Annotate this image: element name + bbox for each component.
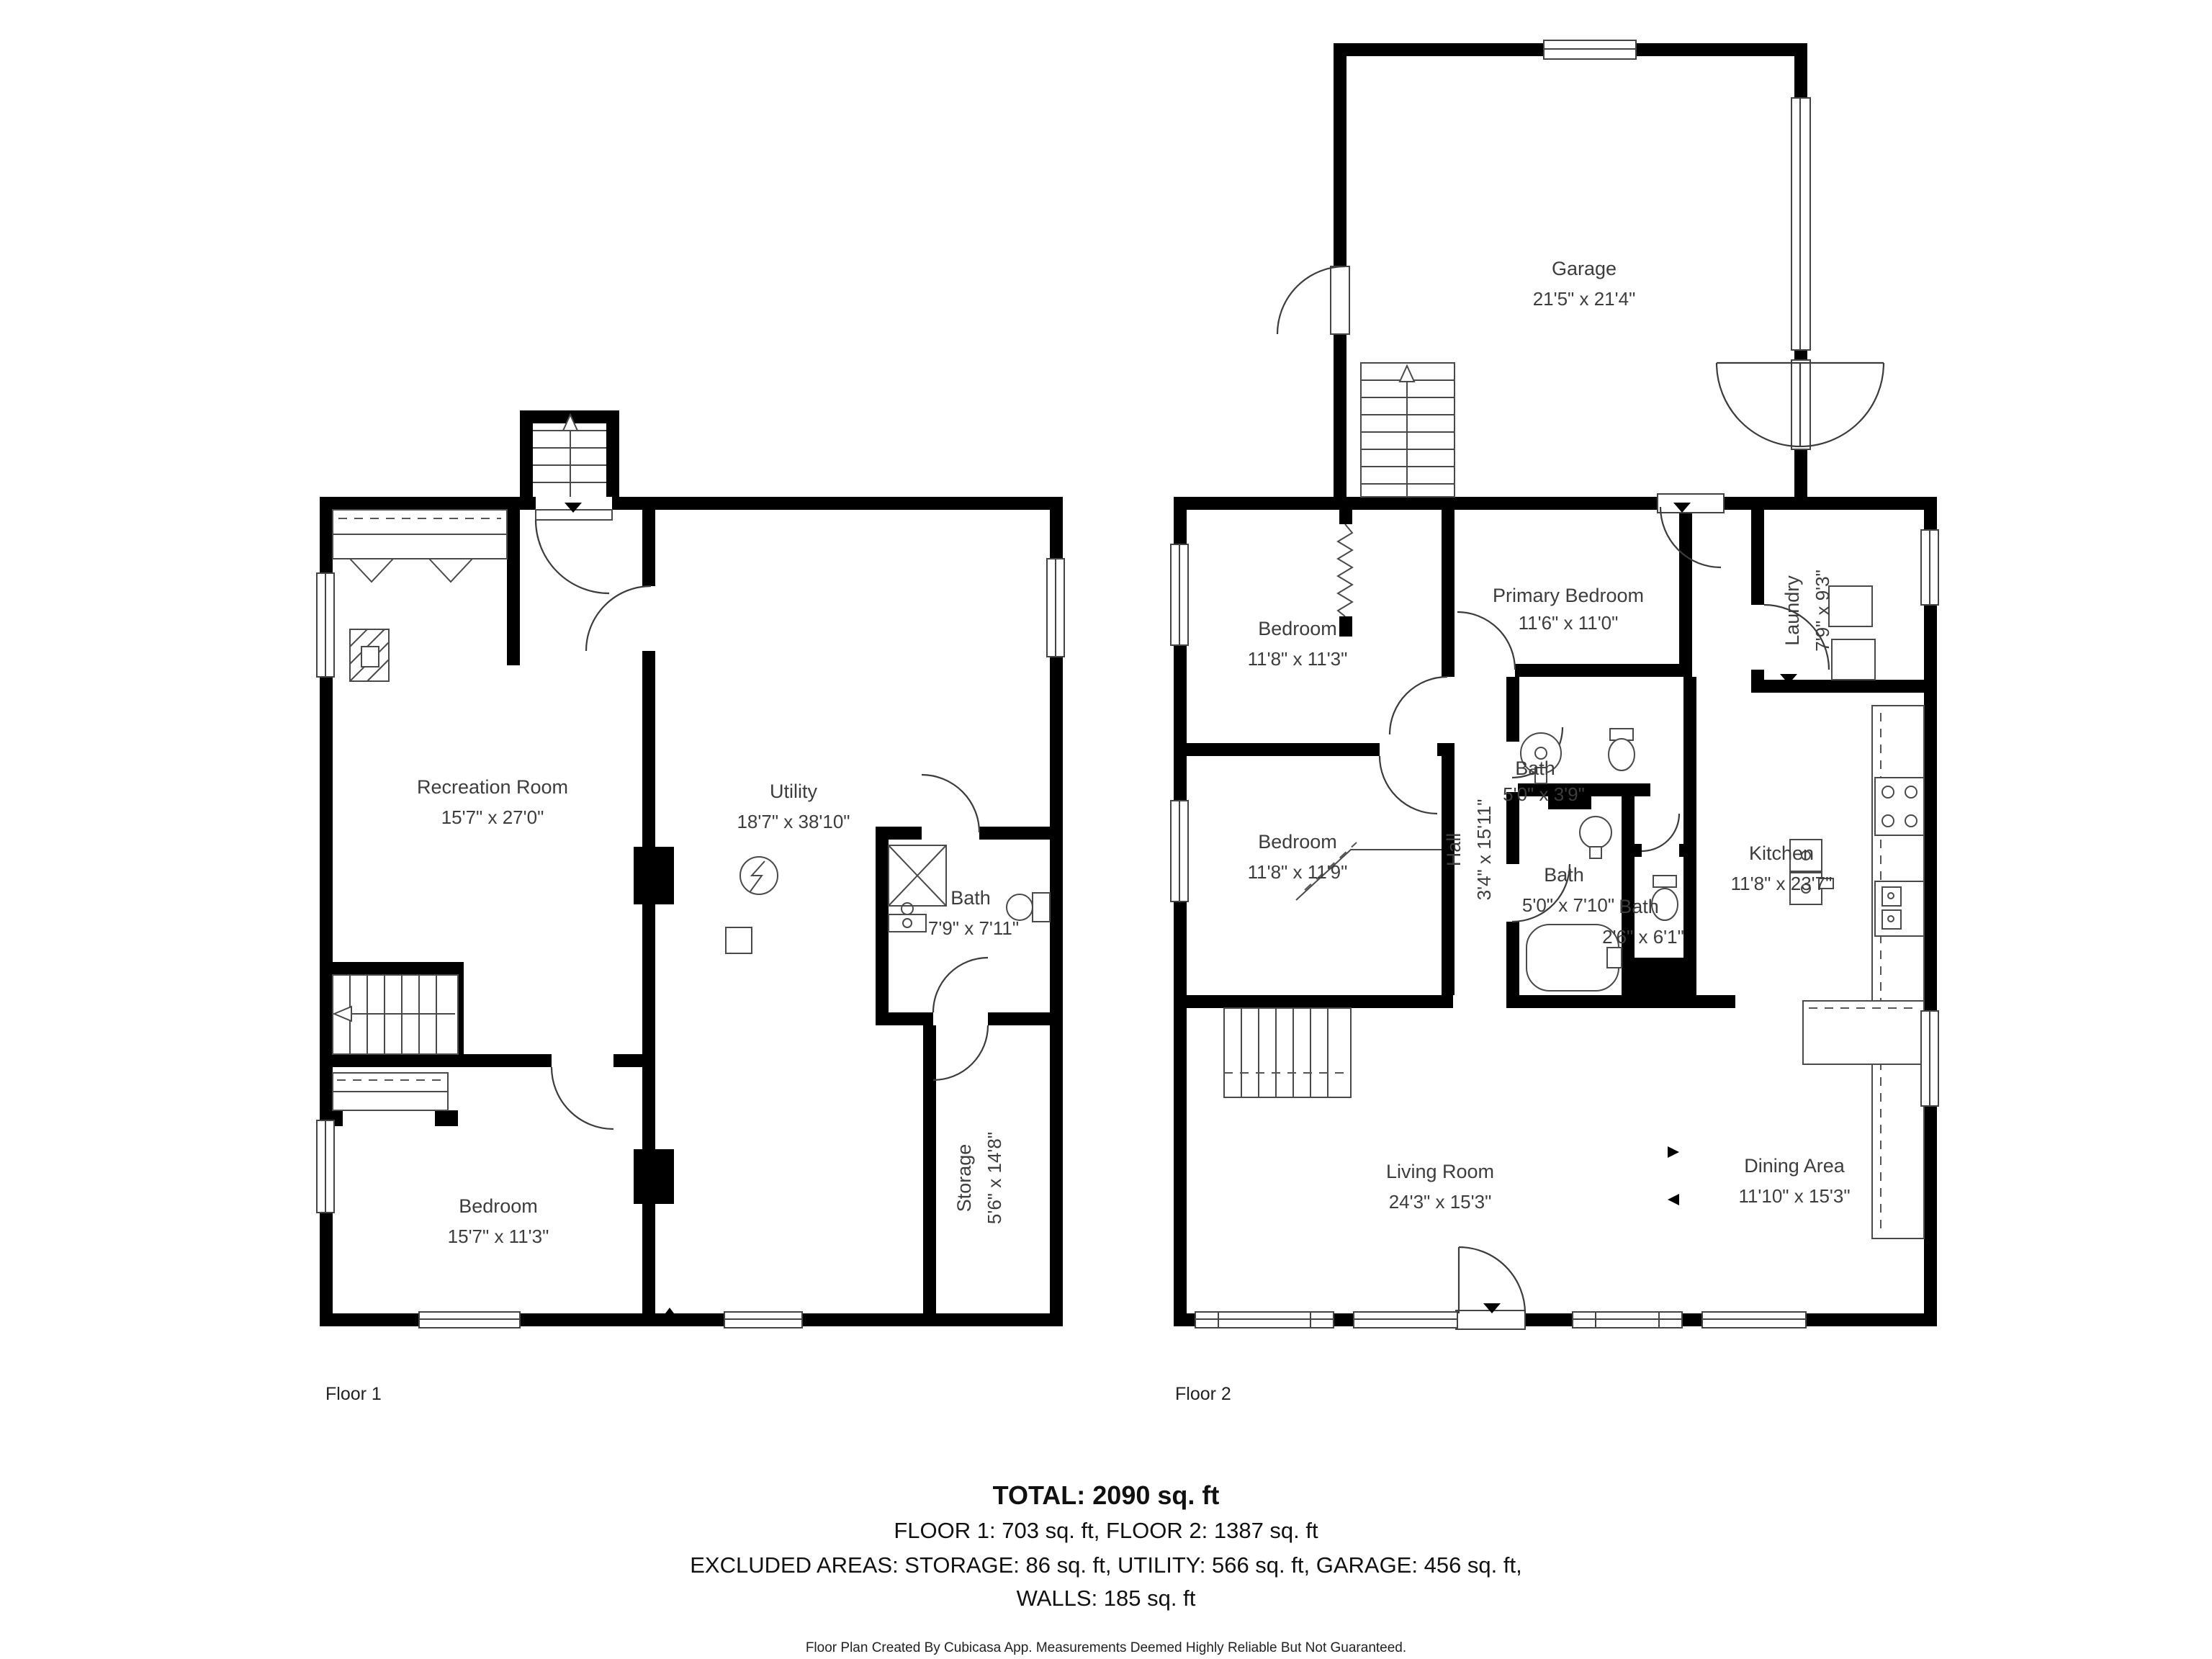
room-label-primary-bedroom: Primary Bedroom <box>1493 585 1644 606</box>
shower-icon <box>889 845 946 906</box>
room-label-bath2: Bath <box>1544 864 1584 886</box>
room-dims-utility: 18'7" x 38'10" <box>737 811 850 832</box>
room-label-laundry: Laundry <box>1781 575 1803 646</box>
summary-walls: WALLS: 185 sq. ft <box>0 1586 2212 1611</box>
fireplace-icon <box>350 629 389 681</box>
floor2-plan: Garage 21'5" x 21'4" Bedroom 11'8" x 11'… <box>1171 40 1938 1404</box>
room-dims-bedroom-b: 11'8" x 11'9" <box>1248 861 1348 883</box>
entry-door-icon <box>536 503 612 593</box>
door-arc-icon <box>586 586 651 651</box>
room-dims-living-room: 24'3" x 15'3" <box>1389 1191 1492 1213</box>
floor2-label: Floor 2 <box>1175 1384 1231 1404</box>
room-dims-laundry: 7'9" x 9'3" <box>1812 570 1833 652</box>
floor1-plan: Recreation Room 15'7" x 27'0" Utility 18… <box>317 410 1064 1404</box>
floorplan-page: Recreation Room 15'7" x 27'0" Utility 18… <box>0 0 2212 1659</box>
electrical-panel-icon <box>726 857 778 953</box>
floorplan-canvas: Recreation Room 15'7" x 27'0" Utility 18… <box>0 0 2212 1659</box>
room-dims-primary-bedroom: 11'6" x 11'0" <box>1519 612 1619 634</box>
room-dims-recreation-room: 15'7" x 27'0" <box>441 806 544 828</box>
floor2-walls <box>1174 43 1937 1326</box>
room-label-bedroom-a: Bedroom <box>1258 618 1337 639</box>
closet-icon <box>333 1073 448 1110</box>
stairs-garage-icon <box>1361 363 1455 497</box>
room-dims-bedroom-f1: 15'7" x 11'3" <box>448 1226 549 1247</box>
room-label-storage: Storage <box>953 1144 975 1213</box>
sink-icon <box>1580 817 1611 858</box>
summary-excluded-areas: EXCLUDED AREAS: STORAGE: 86 sq. ft, UTIL… <box>0 1552 2212 1578</box>
stairs-down-icon <box>333 975 458 1054</box>
room-label-utility: Utility <box>770 781 817 802</box>
room-dims-storage: 5'6" x 14'8" <box>984 1132 1005 1224</box>
door-arc-icon <box>552 1067 613 1129</box>
room-label-recreation-room: Recreation Room <box>417 776 568 798</box>
summary-floors: FLOOR 1: 703 sq. ft, FLOOR 2: 1387 sq. f… <box>0 1518 2212 1544</box>
summary-total: TOTAL: 2090 sq. ft <box>0 1480 2212 1511</box>
floor1-label: Floor 1 <box>325 1384 382 1404</box>
closet-icon <box>333 510 507 582</box>
room-dims-hall: 3'4" x 15'11" <box>1473 799 1495 901</box>
room-dims-bath2: 5'0" x 7'10" <box>1522 894 1614 916</box>
room-label-bath3: Bath <box>1619 896 1659 917</box>
room-dims-dining-area: 11'10" x 15'3" <box>1738 1185 1850 1207</box>
room-dims-garage: 21'5" x 21'4" <box>1533 288 1636 310</box>
room-dims-bedroom-a: 11'8" x 11'3" <box>1248 648 1348 670</box>
stairs-living-icon <box>1224 1008 1351 1097</box>
room-dims-kitchen: 11'8" x 23'7" <box>1731 873 1833 894</box>
dryer-icon <box>1832 639 1875 680</box>
tick-icon <box>1668 1146 1679 1158</box>
room-label-garage: Garage <box>1552 258 1617 279</box>
zigzag-wall-icon <box>1338 524 1352 616</box>
tick-icon <box>1668 1194 1679 1205</box>
room-label-hall: Hall <box>1443 833 1465 867</box>
kitchen-sink-icon <box>1875 881 1924 936</box>
window-icon <box>317 559 1064 1328</box>
room-label-dining-area: Dining Area <box>1744 1155 1845 1177</box>
sink-icon <box>1609 729 1635 770</box>
room-label-bedroom-f1: Bedroom <box>459 1195 538 1217</box>
stove-icon <box>1875 778 1924 835</box>
front-door-icon <box>1456 1247 1525 1329</box>
room-dims-bath-f1: 7'9" x 7'11" <box>928 917 1019 939</box>
room-dims-bath1: 5'0" x 3'9" <box>1503 783 1585 805</box>
stairs-up-icon <box>533 415 606 497</box>
sink-icon <box>889 903 926 932</box>
footer-disclaimer: Floor Plan Created By Cubicasa App. Meas… <box>0 1640 2212 1656</box>
room-label-bedroom-b: Bedroom <box>1258 831 1337 853</box>
room-label-kitchen: Kitchen <box>1749 842 1814 864</box>
room-dims-bath3: 2'6" x 6'1" <box>1602 926 1684 948</box>
washer-icon <box>1829 586 1872 626</box>
room-label-living-room: Living Room <box>1386 1161 1494 1182</box>
room-label-bath1: Bath <box>1515 757 1555 779</box>
room-label-bath-f1: Bath <box>950 887 991 909</box>
